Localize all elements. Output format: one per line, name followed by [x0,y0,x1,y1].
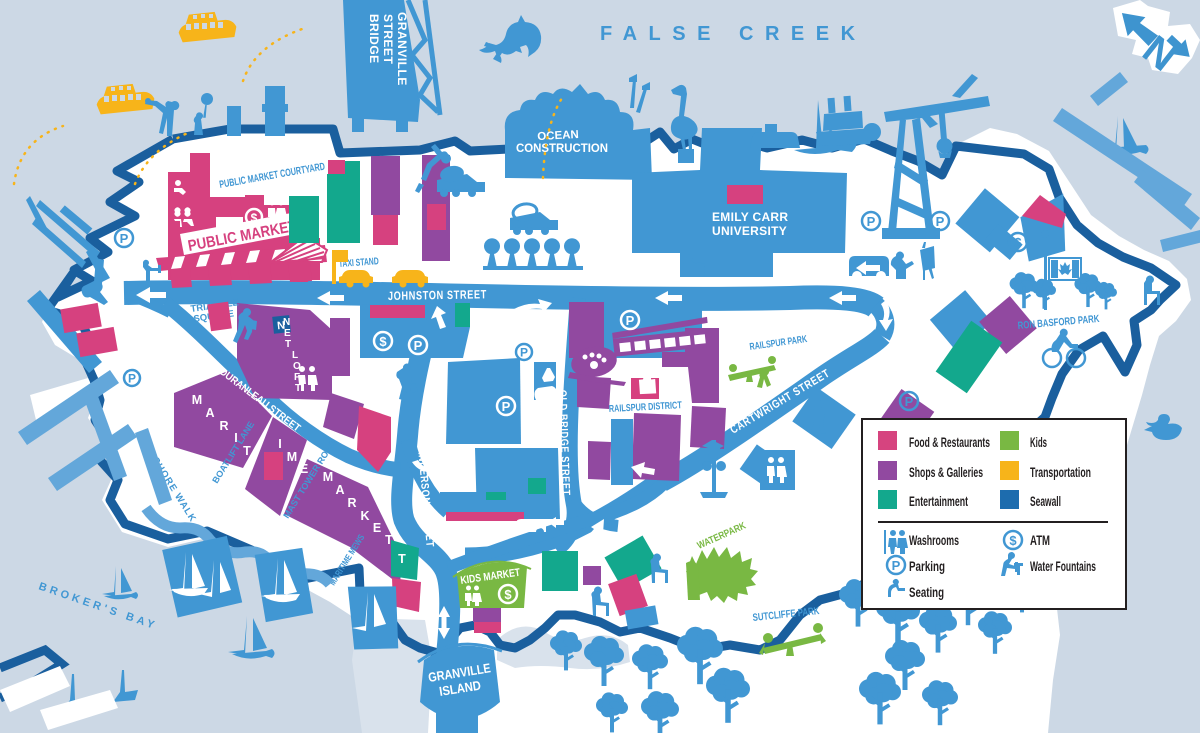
svg-text:$: $ [251,211,258,225]
svg-text:ATM: ATM [1030,533,1050,548]
svg-text:Washrooms: Washrooms [909,533,959,548]
svg-text:Seating: Seating [909,585,944,600]
svg-text:R: R [219,419,228,433]
svg-text:T: T [385,533,393,547]
svg-text:JOHNSTON STREET: JOHNSTON STREET [388,287,487,303]
svg-text:I: I [278,437,281,451]
svg-text:$: $ [1014,235,1022,250]
svg-text:P: P [867,214,876,229]
svg-text:L: L [292,350,298,361]
svg-text:Water Fountains: Water Fountains [1030,559,1096,574]
svg-text:K: K [360,509,369,523]
svg-text:$: $ [379,334,387,349]
svg-text:P: P [520,346,528,360]
svg-text:STREET: STREET [381,14,395,65]
svg-text:P: P [626,313,635,328]
svg-text:P: P [936,214,945,229]
svg-text:$: $ [1009,533,1017,548]
svg-text:P: P [414,338,423,353]
svg-text:Food & Restaurants: Food & Restaurants [909,435,990,450]
svg-text:E: E [284,328,291,339]
svg-text:Shops & Galleries: Shops & Galleries [909,465,983,480]
svg-text:T: T [295,383,301,394]
svg-text:EMILY CARR: EMILY CARR [712,210,788,224]
svg-text:T: T [285,339,291,350]
svg-text:Seawall: Seawall [1030,494,1061,509]
svg-text:R: R [347,496,356,510]
svg-text:T: T [398,552,406,566]
svg-text:GRANVILLE: GRANVILLE [395,12,409,86]
svg-text:P: P [128,372,136,386]
svg-text:Transportation: Transportation [1030,465,1091,480]
svg-text:E: E [373,521,381,535]
svg-text:BRIDGE: BRIDGE [367,14,381,64]
svg-text:M: M [287,450,297,464]
svg-text:Parking: Parking [909,559,945,574]
svg-text:UNIVERSITY: UNIVERSITY [712,224,787,238]
svg-text:P: P [502,399,511,414]
svg-text:Entertainment: Entertainment [909,494,968,509]
svg-text:M: M [323,470,333,484]
svg-text:Kids: Kids [1030,435,1047,450]
svg-text:T: T [243,444,251,458]
svg-text:CONSTRUCTION: CONSTRUCTION [516,143,608,155]
svg-text:OCEAN: OCEAN [537,129,579,143]
svg-text:N: N [283,317,290,328]
svg-text:P: P [892,558,901,573]
svg-text:FALSE CREEK: FALSE CREEK [600,23,867,45]
svg-text:A: A [335,483,344,497]
svg-text:P: P [120,231,129,246]
svg-text:P: P [905,394,914,409]
svg-text:$: $ [504,587,512,602]
svg-text:M: M [192,393,202,407]
svg-text:A: A [205,406,214,420]
